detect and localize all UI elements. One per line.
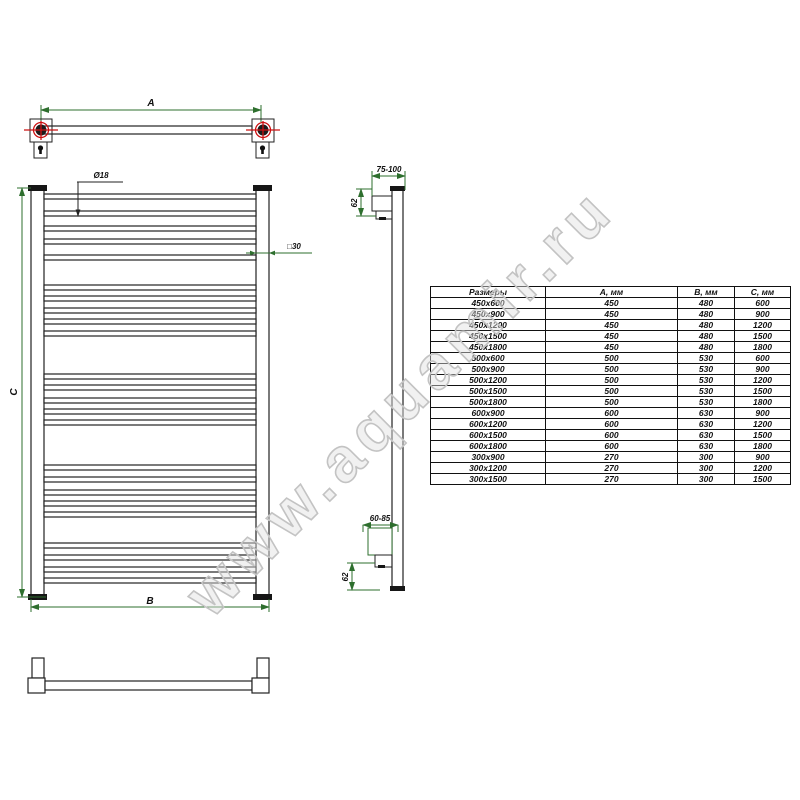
right-bracket-top-view <box>246 119 280 158</box>
rung <box>44 477 256 482</box>
table-cell: 480 <box>678 298 735 309</box>
table-cell: 450 <box>546 342 678 353</box>
table-cell: 900 <box>735 364 791 375</box>
post-section-label: □30 <box>287 242 301 251</box>
rung <box>44 255 256 260</box>
table-row: 600x900600630900 <box>431 408 791 419</box>
rung-diameter-label: Ø18 <box>93 171 109 180</box>
rung <box>44 567 256 572</box>
rung <box>44 239 256 244</box>
table-cell: 300 <box>678 463 735 474</box>
table-cell: 480 <box>678 309 735 320</box>
table-cell: 1800 <box>735 342 791 353</box>
table-cell: 600 <box>735 353 791 364</box>
top-view: А <box>24 98 280 158</box>
table-cell: 300x1500 <box>431 474 546 485</box>
towel-rail-drawing-page: А <box>0 0 800 800</box>
table-cell: 1500 <box>735 386 791 397</box>
rung <box>44 501 256 506</box>
table-cell: 900 <box>735 452 791 463</box>
rung <box>44 578 256 583</box>
front-rungs <box>44 194 256 583</box>
top-bar <box>44 126 252 134</box>
table-cell: 630 <box>678 408 735 419</box>
side-view: 75-100 62 60-85 62 <box>341 165 405 591</box>
rung <box>44 374 256 379</box>
table-cell: 450 <box>546 298 678 309</box>
right-bracket-stem <box>257 658 269 678</box>
table-cell: 450 <box>546 331 678 342</box>
dim-arrow <box>269 251 275 256</box>
table-cell: 500 <box>546 397 678 408</box>
table-cell: 270 <box>546 474 678 485</box>
table-cell: 600x1800 <box>431 441 546 452</box>
table-row: 500x600500530600 <box>431 353 791 364</box>
table-cell: 1200 <box>735 419 791 430</box>
table-cell: 480 <box>678 342 735 353</box>
table-row: 500x900500530900 <box>431 364 791 375</box>
table-cell: 270 <box>546 463 678 474</box>
table-cell: 300x900 <box>431 452 546 463</box>
table-row: 300x12002703001200 <box>431 463 791 474</box>
table-cell: 530 <box>678 397 735 408</box>
dimension-62-bottom-label: 62 <box>341 572 350 581</box>
left-end-cap <box>28 678 45 693</box>
bottom-view <box>28 658 269 693</box>
table-row: 450x600450480600 <box>431 298 791 309</box>
table-cell: 1200 <box>735 320 791 331</box>
rung <box>44 465 256 470</box>
table-header-cell: А, мм <box>546 287 678 298</box>
table-row: 500x12005005301200 <box>431 375 791 386</box>
rung <box>44 211 256 216</box>
rung <box>44 398 256 403</box>
table-cell: 900 <box>735 309 791 320</box>
left-bracket-stem <box>32 658 44 678</box>
table-row: 600x12006006301200 <box>431 419 791 430</box>
table-cell: 500x1200 <box>431 375 546 386</box>
table-cell: 600x1500 <box>431 430 546 441</box>
table-header-row: Размеры А, мм В, мм С, мм <box>431 287 791 298</box>
rung <box>44 308 256 313</box>
dimension-75-100-label: 75-100 <box>377 165 402 174</box>
table-cell: 600 <box>546 441 678 452</box>
rung <box>44 226 256 231</box>
table-row: 450x18004504801800 <box>431 342 791 353</box>
table-row: 500x15005005301500 <box>431 386 791 397</box>
side-bottom-bracket <box>368 528 392 568</box>
table-cell: 300 <box>678 452 735 463</box>
table-cell: 300 <box>678 474 735 485</box>
dimension-b-label: В <box>146 596 153 607</box>
table-cell: 1500 <box>735 474 791 485</box>
table-cell: 450 <box>546 309 678 320</box>
table-cell: 630 <box>678 430 735 441</box>
table-cell: 450x1500 <box>431 331 546 342</box>
table-cell: 530 <box>678 364 735 375</box>
table-cell: 500 <box>546 353 678 364</box>
front-view: С В Ø18 □30 <box>9 171 312 612</box>
table-cell: 480 <box>678 320 735 331</box>
table-cell: 450x1200 <box>431 320 546 331</box>
table-row: 450x900450480900 <box>431 309 791 320</box>
table-header-cell: С, мм <box>735 287 791 298</box>
table-cell: 450 <box>546 320 678 331</box>
rung <box>44 285 256 290</box>
side-tube-bottom-cap <box>390 586 405 591</box>
table-cell: 530 <box>678 386 735 397</box>
size-table: Размеры А, мм В, мм С, мм 450x6004504806… <box>430 286 791 485</box>
table-header-cell: Размеры <box>431 287 546 298</box>
table-cell: 500x900 <box>431 364 546 375</box>
table-row: 600x18006006301800 <box>431 441 791 452</box>
rung <box>44 555 256 560</box>
bottom-bar <box>45 681 252 690</box>
table-cell: 600x1200 <box>431 419 546 430</box>
rung <box>44 194 256 199</box>
table-cell: 500x600 <box>431 353 546 364</box>
keyhole-slot <box>39 148 42 154</box>
table-cell: 300x1200 <box>431 463 546 474</box>
table-cell: 600 <box>546 408 678 419</box>
table-row: 500x18005005301800 <box>431 397 791 408</box>
table-cell: 500 <box>546 364 678 375</box>
table-cell: 500 <box>546 375 678 386</box>
rung <box>44 296 256 301</box>
dimension-a-label: А <box>146 98 154 109</box>
rung <box>44 420 256 425</box>
rung <box>44 512 256 517</box>
table-row: 450x12004504801200 <box>431 320 791 331</box>
left-post <box>31 190 44 595</box>
left-bracket-top-view <box>24 119 58 158</box>
table-cell: 900 <box>735 408 791 419</box>
table-cell: 530 <box>678 353 735 364</box>
size-table-body: 450x600450480600450x900450480900450x1200… <box>431 298 791 485</box>
right-post-top-cap <box>253 185 272 191</box>
table-cell: 500x1800 <box>431 397 546 408</box>
table-cell: 450x900 <box>431 309 546 320</box>
table-cell: 600x900 <box>431 408 546 419</box>
table-header-cell: В, мм <box>678 287 735 298</box>
table-cell: 270 <box>546 452 678 463</box>
rung <box>44 319 256 324</box>
table-cell: 450x600 <box>431 298 546 309</box>
dimension-c-label: С <box>9 388 20 396</box>
rung <box>44 385 256 390</box>
table-cell: 530 <box>678 375 735 386</box>
table-cell: 1200 <box>735 375 791 386</box>
table-cell: 480 <box>678 331 735 342</box>
table-row: 300x15002703001500 <box>431 474 791 485</box>
table-row: 450x15004504801500 <box>431 331 791 342</box>
table-cell: 1200 <box>735 463 791 474</box>
rung <box>44 409 256 414</box>
keyhole-slot <box>261 148 264 154</box>
table-cell: 600 <box>735 298 791 309</box>
table-cell: 1500 <box>735 331 791 342</box>
table-row: 600x15006006301500 <box>431 430 791 441</box>
table-cell: 630 <box>678 441 735 452</box>
table-cell: 1800 <box>735 441 791 452</box>
table-cell: 1800 <box>735 397 791 408</box>
rung <box>44 543 256 548</box>
dimension-62-top-label: 62 <box>350 198 359 207</box>
dimension-60-85-label: 60-85 <box>370 514 391 523</box>
right-post <box>256 190 269 595</box>
table-cell: 500x1500 <box>431 386 546 397</box>
side-tube-top-cap <box>390 186 405 191</box>
table-cell: 630 <box>678 419 735 430</box>
table-cell: 600 <box>546 419 678 430</box>
table-cell: 500 <box>546 386 678 397</box>
table-row: 300x900270300900 <box>431 452 791 463</box>
table-cell: 450x1800 <box>431 342 546 353</box>
rung <box>44 331 256 336</box>
table-cell: 600 <box>546 430 678 441</box>
rung <box>44 490 256 495</box>
table-cell: 1500 <box>735 430 791 441</box>
right-end-cap <box>252 678 269 693</box>
